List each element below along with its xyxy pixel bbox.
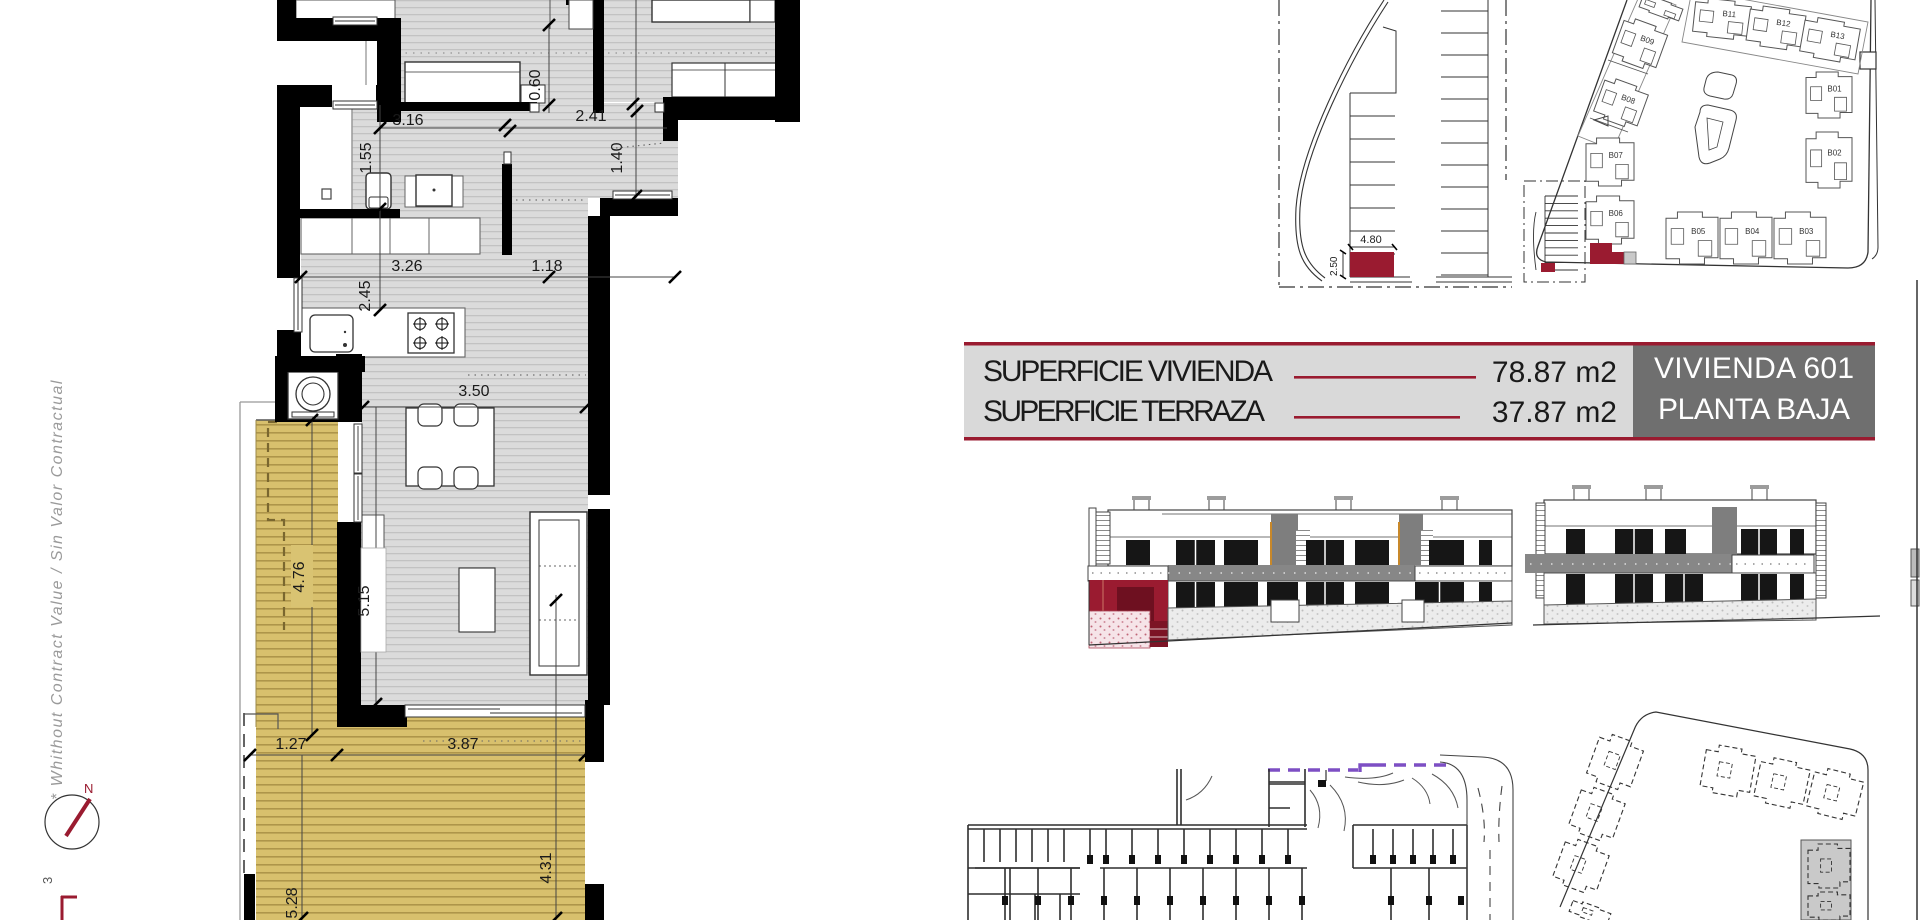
svg-text:SUPERFICIE TERRAZA: SUPERFICIE TERRAZA <box>983 395 1265 428</box>
svg-text:37.87 m2: 37.87 m2 <box>1492 396 1617 429</box>
svg-text:B06: B06 <box>1609 209 1624 218</box>
svg-text:1.27: 1.27 <box>275 736 306 753</box>
svg-text:SUPERFICIE VIVIENDA: SUPERFICIE VIVIENDA <box>983 355 1273 388</box>
svg-text:3: 3 <box>40 877 55 884</box>
svg-text:1.40: 1.40 <box>609 142 626 173</box>
svg-text:0.60: 0.60 <box>527 69 544 100</box>
svg-text:5.28: 5.28 <box>284 887 301 918</box>
svg-text:4.80: 4.80 <box>1360 234 1381 246</box>
svg-text:3.87: 3.87 <box>447 736 478 753</box>
svg-text:B11: B11 <box>1722 9 1737 19</box>
svg-text:B04: B04 <box>1745 227 1760 236</box>
svg-text:PLANTA BAJA: PLANTA BAJA <box>1658 393 1850 426</box>
svg-text:B01: B01 <box>1827 84 1842 93</box>
svg-text:78.87 m2: 78.87 m2 <box>1492 356 1617 389</box>
svg-text:N: N <box>84 781 93 796</box>
svg-text:2.45: 2.45 <box>357 280 374 311</box>
svg-text:VIVIENDA 601: VIVIENDA 601 <box>1654 352 1854 385</box>
svg-text:B03: B03 <box>1799 227 1814 236</box>
svg-text:B07: B07 <box>1609 151 1624 160</box>
svg-text:1.55: 1.55 <box>358 142 375 173</box>
svg-text:3.26: 3.26 <box>391 258 422 275</box>
svg-text:4.31: 4.31 <box>538 852 555 883</box>
svg-text:2.50: 2.50 <box>1329 256 1340 276</box>
svg-text:* Whithout Contract Value / S: * Whithout Contract Value / Sin Valor Co… <box>49 379 66 800</box>
svg-text:B02: B02 <box>1827 149 1842 158</box>
svg-text:3.16: 3.16 <box>392 112 423 129</box>
svg-text:5.15: 5.15 <box>356 585 373 616</box>
svg-text:1.18: 1.18 <box>531 258 562 275</box>
svg-text:2.41: 2.41 <box>575 108 606 125</box>
svg-text:4.76: 4.76 <box>291 561 308 592</box>
svg-text:3.50: 3.50 <box>458 383 489 400</box>
svg-text:B05: B05 <box>1691 227 1706 236</box>
